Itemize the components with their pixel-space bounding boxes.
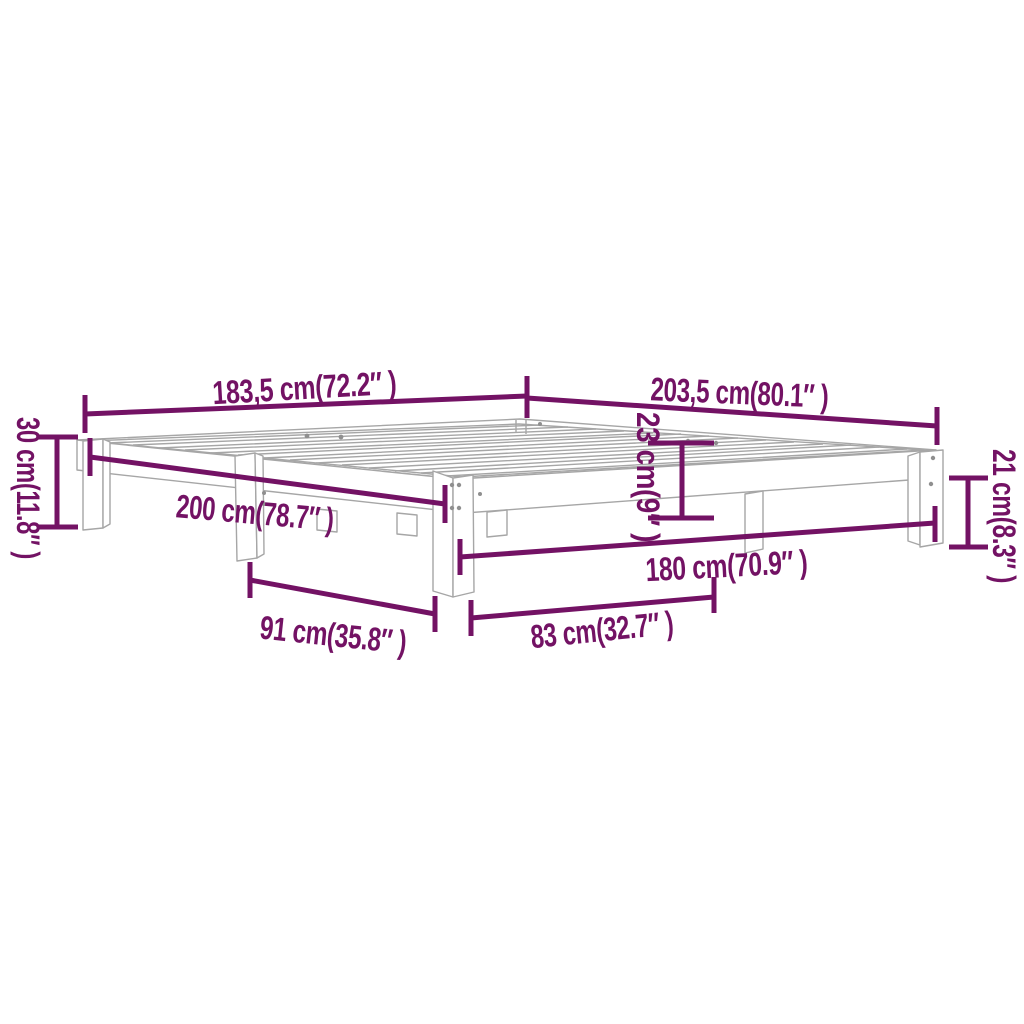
dimension-leg-spacing-front: 83 cm(32.7″ ) <box>471 577 714 655</box>
diagram-canvas: 183,5 cm(72.2″ ) 203,5 cm(80.1″ ) 30 cm(… <box>0 0 1024 1024</box>
bed-leg-right <box>908 450 943 547</box>
dimension-leg-spacing-left: 91 cm(35.8″ ) <box>250 562 435 661</box>
bed-support-block <box>487 510 507 537</box>
dimension-label: 23 cm(9″ ) <box>630 412 666 542</box>
dimension-height-left: 30 cm(11.8″ ) <box>10 417 78 559</box>
bed-leg-front-corner <box>433 471 474 597</box>
dimension-label: 21 cm(8.3″ ) <box>986 449 1022 583</box>
dimension-label: 91 cm(35.8″ ) <box>258 608 408 660</box>
dimension-label: 30 cm(11.8″ ) <box>10 417 46 559</box>
bed-leg-front-left <box>83 439 110 530</box>
bed-support-block <box>397 513 417 536</box>
dimension-label: 203,5 cm(80.1″ ) <box>650 370 829 414</box>
dimension-height-right: 21 cm(8.3″ ) <box>949 449 1022 583</box>
dimension-label: 180 cm(70.9″ ) <box>645 543 809 588</box>
product-dimension-diagram: 183,5 cm(72.2″ ) 203,5 cm(80.1″ ) 30 cm(… <box>0 0 1024 1024</box>
bed-support-leg <box>745 491 763 553</box>
dimension-line <box>250 580 435 614</box>
